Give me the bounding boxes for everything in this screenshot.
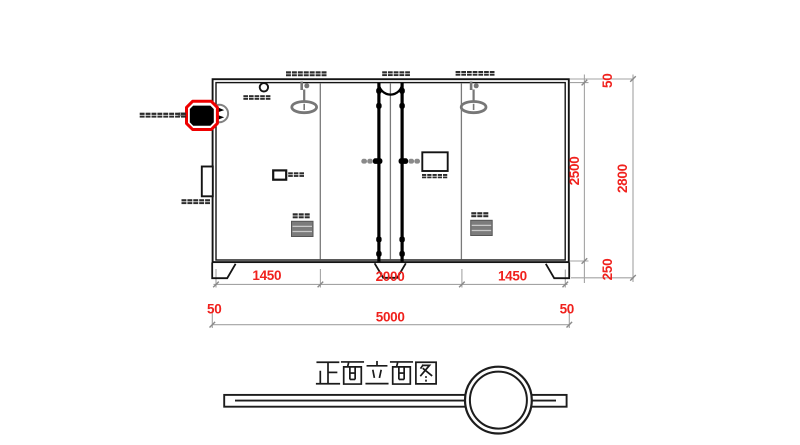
svg-text:50: 50 [600, 74, 615, 88]
svg-text:1450: 1450 [252, 268, 281, 283]
svg-text:1450: 1450 [498, 268, 527, 283]
svg-text:5000: 5000 [376, 310, 405, 325]
svg-text:2800: 2800 [615, 164, 630, 193]
svg-text:50: 50 [207, 301, 221, 316]
svg-text:2500: 2500 [567, 157, 582, 186]
svg-text:50: 50 [560, 301, 574, 316]
svg-text:250: 250 [600, 259, 615, 281]
svg-text:2000: 2000 [376, 269, 405, 284]
